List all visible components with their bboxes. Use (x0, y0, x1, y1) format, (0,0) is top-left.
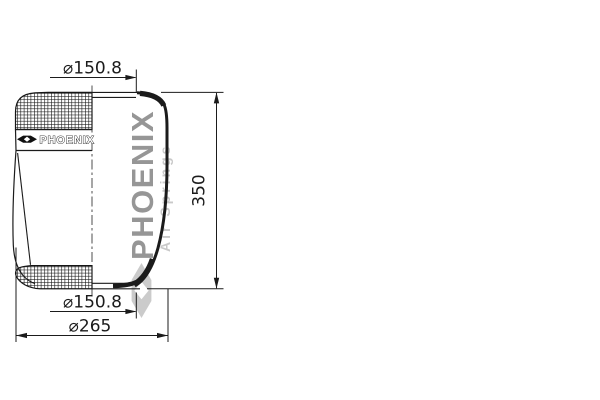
top-bead-section-hatch (16, 92, 93, 129)
bottom-diameter-label: ⌀150.8 (63, 293, 122, 313)
drawing-canvas: PHOENIX Air Springs PHOENIX (0, 0, 600, 400)
watermark-brand-text: PHOENIX (125, 110, 160, 260)
phoenix-lens-logo-icon (17, 136, 37, 143)
bellows-brand-text: PHOENIX (40, 135, 95, 147)
right-profile-shoulder-thick (140, 93, 164, 105)
right-profile-heel-sweep (113, 282, 137, 286)
top-dim-arrow-icon (125, 75, 136, 80)
height-bottom-arrow-icon (214, 278, 219, 289)
max-diameter-label: ⌀265 (69, 317, 112, 337)
air-spring-technical-drawing: PHOENIX Air Springs PHOENIX (0, 0, 600, 400)
bellows-brand-label: PHOENIX (17, 135, 95, 147)
left-inner-wall-line (18, 153, 31, 265)
max-dim-left-arrow-icon (16, 333, 27, 338)
height-label: 350 (190, 174, 210, 206)
top-diameter-label: ⌀150.8 (63, 59, 122, 79)
label-band-left-edge (16, 130, 17, 151)
bottom-bead-section-hatch (16, 266, 92, 289)
height-top-arrow-icon (214, 92, 219, 103)
bottom-dim-arrow-icon (125, 309, 136, 314)
max-dim-right-arrow-icon (157, 333, 168, 338)
